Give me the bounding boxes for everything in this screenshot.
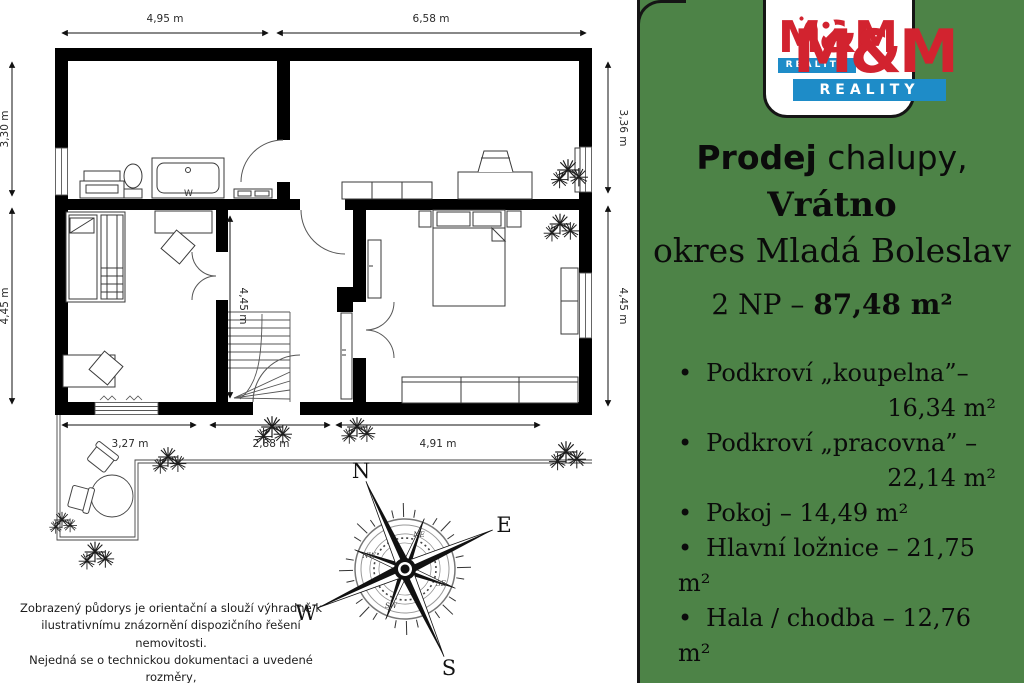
room-label: Podkroví „pracovna” – bbox=[706, 429, 977, 457]
compass-s: S bbox=[442, 656, 456, 680]
svg-text:3,30 m: 3,30 m bbox=[0, 111, 11, 148]
svg-text:4,45 m: 4,45 m bbox=[617, 288, 629, 325]
hall-wardrobe bbox=[341, 313, 352, 399]
bullet-icon: • bbox=[678, 359, 692, 387]
staircase bbox=[228, 312, 290, 402]
floor-plan: W bbox=[0, 0, 637, 683]
compass-ne: NE bbox=[412, 531, 424, 539]
compass-n: N bbox=[352, 459, 370, 483]
disclaimer-line: ilustrativnímu znázornění dispozičního ř… bbox=[10, 617, 332, 652]
disclaimer-line: Zobrazený půdorys je orientační a slouží… bbox=[10, 600, 332, 617]
compass-nw: NW bbox=[361, 552, 376, 560]
headline-line2: Vrátno bbox=[640, 185, 1024, 225]
panel-corner-line bbox=[637, 0, 686, 49]
bullet-icon: • bbox=[678, 604, 692, 632]
bullet-icon: • bbox=[678, 429, 692, 457]
office-furniture bbox=[342, 148, 580, 199]
headline-line3: okres Mladá Boleslav bbox=[640, 231, 1024, 270]
room-label: Podkroví „koupelna”– bbox=[706, 359, 968, 387]
compass-e: E bbox=[496, 513, 511, 537]
svg-text:4,45 m: 4,45 m bbox=[237, 288, 249, 325]
bullet-icon: • bbox=[678, 534, 692, 562]
svg-text:6,58 m: 6,58 m bbox=[413, 13, 450, 25]
room-list: •Podkroví „koupelna”–16,34 m²•Podkroví „… bbox=[678, 356, 1008, 671]
flyer: W bbox=[0, 0, 1024, 683]
disclaimer-text: Zobrazený půdorys je orientační a slouží… bbox=[10, 600, 332, 683]
room-list-item: •Hlavní ložnice – 21,75 m² bbox=[678, 531, 1008, 601]
room-list-item: •Podkroví „pracovna” –22,14 m² bbox=[678, 426, 1008, 496]
room-label: Pokoj – 14,49 m² bbox=[706, 499, 908, 527]
svg-text:2,88 m: 2,88 m bbox=[253, 438, 290, 450]
kids-room-furniture bbox=[63, 211, 212, 387]
agency-logo-large: M&M REALITY bbox=[793, 22, 956, 101]
logo-mm-text: M&M bbox=[793, 22, 956, 82]
room-area-value: 16,34 m² bbox=[678, 391, 1008, 426]
compass-sw: SW bbox=[385, 602, 398, 610]
room-list-item: •Hala / chodba – 12,76 m² bbox=[678, 601, 1008, 671]
room-label: Hlavní ložnice – 21,75 m² bbox=[678, 534, 975, 597]
walls bbox=[55, 48, 592, 415]
headline-line1: Prodej chalupy, bbox=[640, 138, 1024, 177]
terrace bbox=[57, 415, 592, 540]
compass-se: SE bbox=[436, 580, 446, 588]
svg-text:4,91 m: 4,91 m bbox=[420, 438, 457, 450]
room-area-value: 22,14 m² bbox=[678, 461, 1008, 496]
svg-text:3,27 m: 3,27 m bbox=[112, 438, 149, 450]
bathroom-fixtures bbox=[80, 158, 272, 198]
room-label: Hala / chodba – 12,76 m² bbox=[678, 604, 971, 667]
bullet-icon: • bbox=[678, 499, 692, 527]
listing-headline: Prodej chalupy, Vrátno okres Mladá Boles… bbox=[640, 138, 1024, 321]
disclaimer-line: Nejedná se o technickou dokumentaci a uv… bbox=[10, 652, 332, 683]
info-panel: M&M REALITY M&M REALITY Prodej chalupy, … bbox=[637, 0, 1024, 683]
tub-tap-label: W bbox=[184, 189, 193, 199]
room-list-item: •Podkroví „koupelna”–16,34 m² bbox=[678, 356, 1008, 426]
headline-area: 2 NP – 87,48 m² bbox=[640, 288, 1024, 321]
svg-text:4,45 m: 4,45 m bbox=[0, 288, 11, 325]
svg-text:3,36 m: 3,36 m bbox=[617, 110, 629, 147]
svg-text:4,95 m: 4,95 m bbox=[147, 13, 184, 25]
room-list-item: •Pokoj – 14,49 m² bbox=[678, 496, 1008, 531]
